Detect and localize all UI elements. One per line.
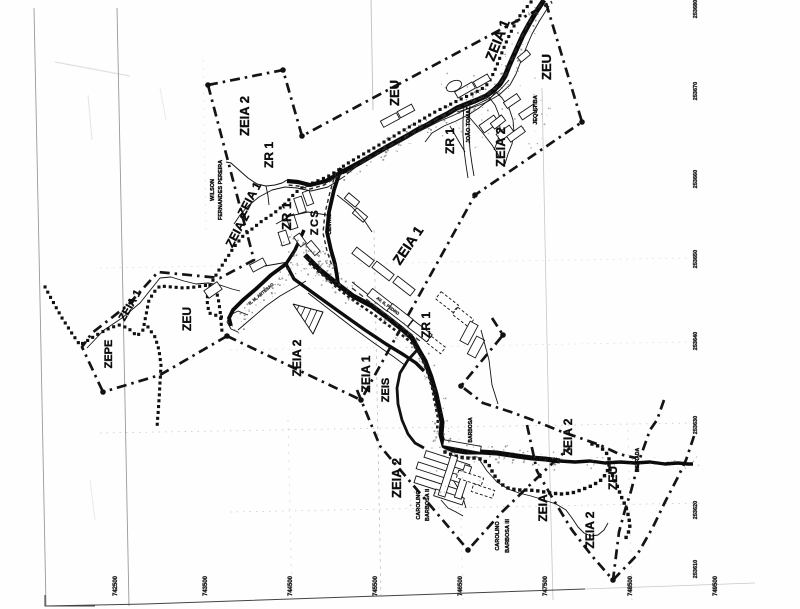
svg-text:JEQUITIBA: JEQUITIBA	[533, 95, 539, 124]
svg-text:253610: 253610	[693, 560, 699, 578]
svg-text:253660: 253660	[693, 170, 699, 188]
svg-text:ZEU: ZEU	[387, 80, 402, 106]
svg-text:ZEIS: ZEIS	[380, 378, 392, 402]
svg-text:ZEIA 2: ZEIA 2	[237, 96, 252, 136]
svg-text:253670: 253670	[693, 82, 699, 100]
svg-text:ZEU: ZEU	[539, 54, 554, 80]
svg-text:253680: 253680	[693, 0, 699, 18]
svg-text:JOÃO TOMAZ: JOÃO TOMAZ	[465, 106, 472, 143]
svg-text:ZEIA: ZEIA	[536, 494, 550, 522]
svg-text:ZEIA 2: ZEIA 2	[290, 339, 304, 376]
svg-text:ZEIA 2: ZEIA 2	[583, 511, 597, 548]
svg-text:747500: 747500	[543, 575, 549, 596]
svg-text:ESTRADA: ESTRADA	[635, 448, 641, 473]
svg-text:742500: 742500	[113, 575, 119, 596]
svg-text:749500: 749500	[713, 575, 719, 596]
svg-text:ZEIA 1: ZEIA 1	[359, 355, 373, 392]
svg-text:748500: 748500	[628, 575, 634, 596]
svg-text:ZR 1: ZR 1	[419, 312, 433, 338]
svg-text:ZEIA 2: ZEIA 2	[389, 458, 404, 498]
svg-text:CAROLINO: CAROLINO	[495, 521, 501, 551]
svg-text:ZR 1: ZR 1	[443, 128, 457, 154]
svg-text:253630: 253630	[693, 416, 699, 434]
svg-text:ZEU: ZEU	[180, 307, 194, 331]
svg-text:744500: 744500	[288, 575, 294, 596]
svg-text:ZR 1: ZR 1	[279, 202, 294, 230]
svg-text:BARBOSA III: BARBOSA III	[505, 519, 511, 553]
svg-text:746500: 746500	[458, 575, 464, 596]
svg-text:WILSON: WILSON	[210, 179, 216, 201]
svg-text:BARBOSA II: BARBOSA II	[425, 488, 431, 521]
svg-text:BARBOSA: BARBOSA	[468, 417, 474, 443]
svg-text:ZCS: ZCS	[309, 209, 321, 236]
svg-text:CAROLINO: CAROLINO	[416, 490, 422, 520]
svg-text:ZEIA 2: ZEIA 2	[561, 418, 575, 455]
svg-text:ZEIA 2: ZEIA 2	[493, 127, 508, 167]
svg-text:CENTRO: CENTRO	[327, 213, 333, 234]
svg-text:ZEPE: ZEPE	[103, 340, 115, 369]
svg-text:253640: 253640	[693, 332, 699, 350]
svg-text:743500: 743500	[203, 575, 209, 596]
svg-text:FERNANDES PEREIRA: FERNANDES PEREIRA	[218, 160, 224, 220]
svg-text:ZR 1: ZR 1	[262, 142, 276, 168]
svg-text:253620: 253620	[693, 501, 699, 519]
svg-text:ZEU: ZEU	[606, 466, 620, 490]
svg-text:745500: 745500	[373, 575, 379, 596]
svg-text:253650: 253650	[693, 250, 699, 268]
